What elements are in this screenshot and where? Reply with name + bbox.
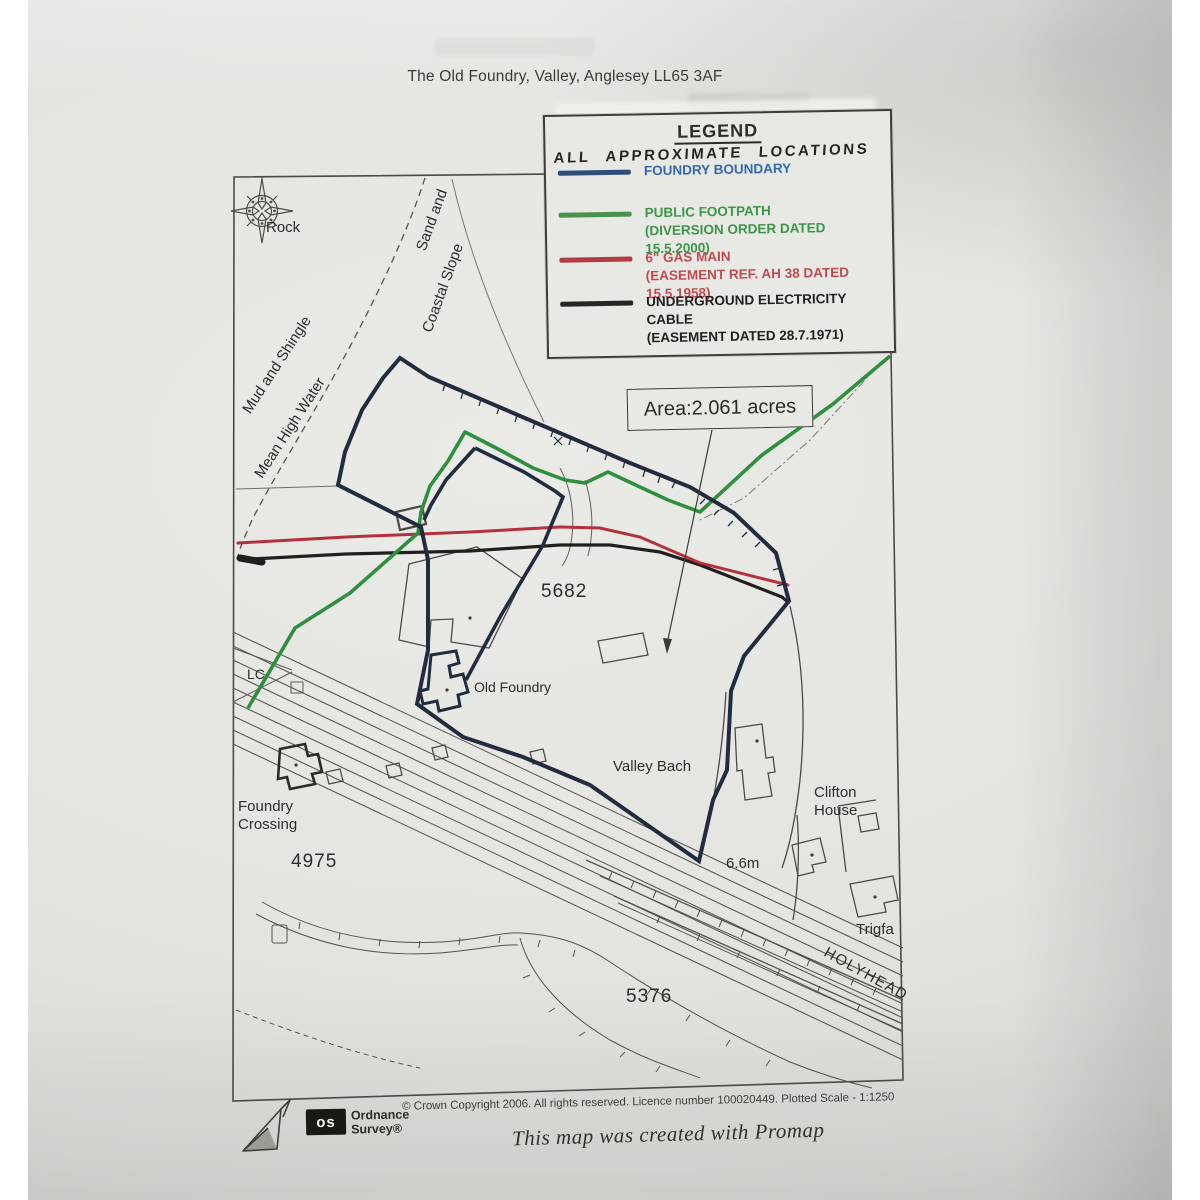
map-label-clifton-house: Clifton House [814,784,857,820]
map-label-valley-bach: Valley Bach [613,758,691,775]
coastal-slope-line [452,179,544,422]
boundary-line-swatch [558,170,631,176]
map-label-5376: 5376 [626,986,672,1008]
foundry-crossing-house [278,744,322,789]
map-label-spot-height: 6.6m [726,855,759,872]
area-callout: Area:2.061 acres [627,385,814,431]
scanned-map-page: The Old Foundry, Valley, Anglesey LL65 3… [0,0,1200,1200]
footpath-line-swatch [559,212,632,218]
map-label-trigfa: Trigfa [856,921,894,938]
map-label-foundry-crossing: Foundry Crossing [238,798,297,834]
os-logo-label: Ordnance Survey® [351,1107,410,1136]
map-label-old-foundry: Old Foundry [474,679,551,695]
os-logo: os [306,1109,346,1136]
buildings-thin [326,506,898,920]
area-leader-arrow [663,430,712,654]
electricity-cable-line-swatch [560,301,633,307]
foundry-boundary-line [338,358,789,861]
map-label-4975: 4975 [291,851,337,873]
legend-item-electricity: UNDERGROUND ELECTRICITY CABLE (EASEMENT … [646,289,894,347]
legend-box: LEGEND ALL APPROXIMATE LOCATIONS FOUNDRY… [543,109,896,359]
promap-logo [243,1100,290,1151]
electricity-cable-line [252,545,789,603]
map-label-5682: 5682 [541,581,587,603]
gas-main-line-swatch [559,257,632,263]
legend-item-boundary: FOUNDRY BOUNDARY [644,160,792,181]
legend-label: UNDERGROUND ELECTRICITY CABLE [646,289,894,329]
map-label-lc: LC [247,666,265,682]
field-line [236,486,338,489]
building-dots [294,616,876,898]
legend-label: FOUNDRY BOUNDARY [644,160,792,181]
legend-note: (EASEMENT DATED 28.7.1971) [647,325,894,347]
map-label-rock: Rock [266,219,300,236]
